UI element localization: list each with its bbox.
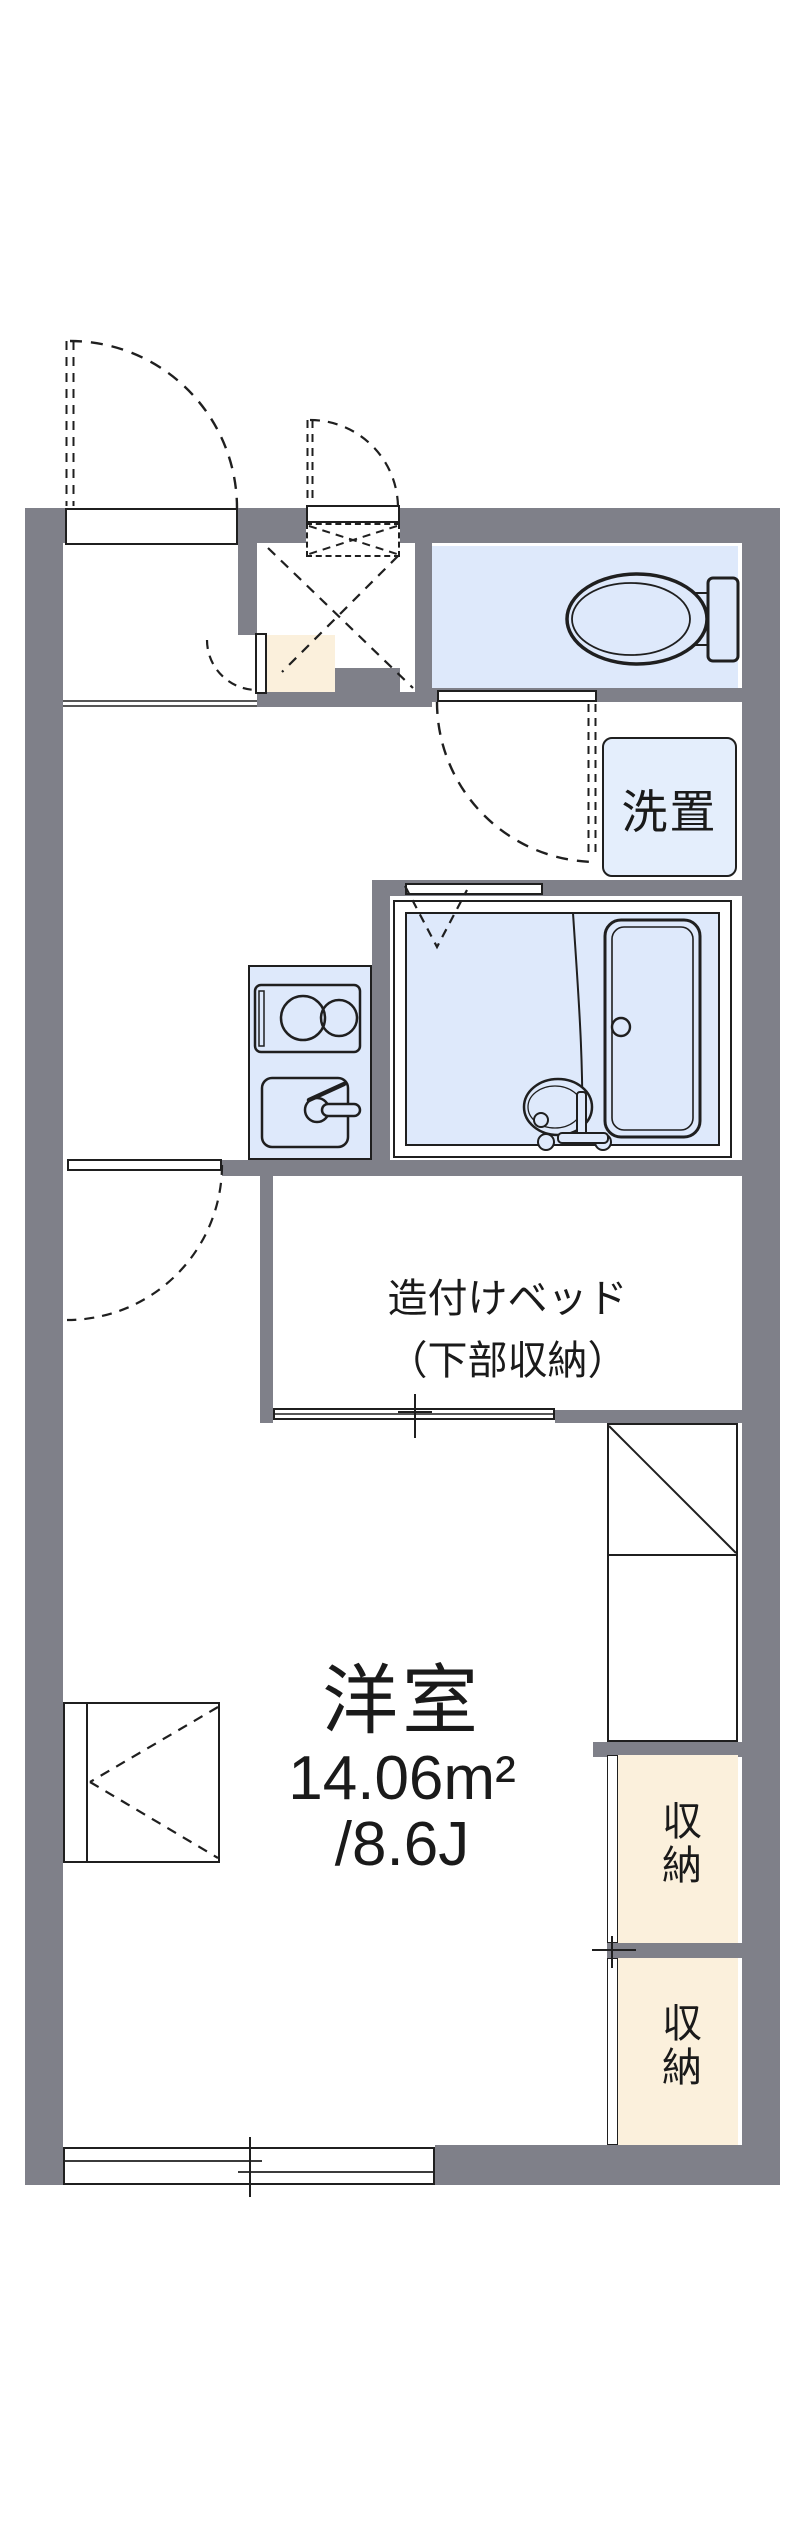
bed-door-track-line [273, 1394, 555, 1438]
entrance-door-swing-icon [67, 341, 238, 508]
bed-label-line1: 造付けベッド [273, 1268, 742, 1330]
storage-upper-label: 収納 [649, 1800, 707, 1888]
storage-lower-label: 収納 [649, 2002, 707, 2090]
hall-boundary-line [63, 701, 257, 706]
bathtub-icon [605, 920, 700, 1137]
room-name-label: 洋室 [202, 1664, 602, 1740]
hall-door-arc-icon [207, 640, 257, 690]
closet-diagonal-line [607, 1426, 738, 1555]
kitchen-sink-icon [262, 1078, 360, 1147]
shoe-cabinet-x-icon [309, 526, 397, 554]
room-area-jo-label: /8.6J [202, 1814, 602, 1876]
built-in-bed-label: 造付けベッド （下部収納） [273, 1268, 742, 1392]
cabinet-open-direction-icon [87, 1702, 218, 1863]
western-room-label-block: 洋室 14.06m² /8.6J [202, 1664, 602, 1876]
room-door-arc-icon [67, 1165, 222, 1320]
cabinet-door-swing-icon [308, 420, 399, 508]
floor-plan: 洗置 造付けベッド （下部収納） 洋室 14.06m² /8.6J 収納 収納 [0, 0, 800, 2535]
room-area-m2-label: 14.06m² [202, 1748, 602, 1810]
storage-divider-tick [592, 1936, 636, 1968]
bed-label-line2: （下部収納） [273, 1330, 742, 1392]
stove-icon [255, 985, 360, 1052]
toilet-door-swing-icon [437, 702, 597, 862]
storage-lower-label-wrap: 収納 [618, 2002, 738, 2090]
storage-upper-label-wrap: 収納 [618, 1800, 738, 1888]
hall-clearance-x-icon [268, 548, 413, 688]
washbasin-icon [524, 1079, 611, 1150]
bath-fold-door-icon [405, 886, 467, 947]
window-pane-lines [65, 2137, 433, 2197]
toilet-icon [567, 574, 738, 664]
washer-space-label: 洗置 [602, 776, 737, 842]
